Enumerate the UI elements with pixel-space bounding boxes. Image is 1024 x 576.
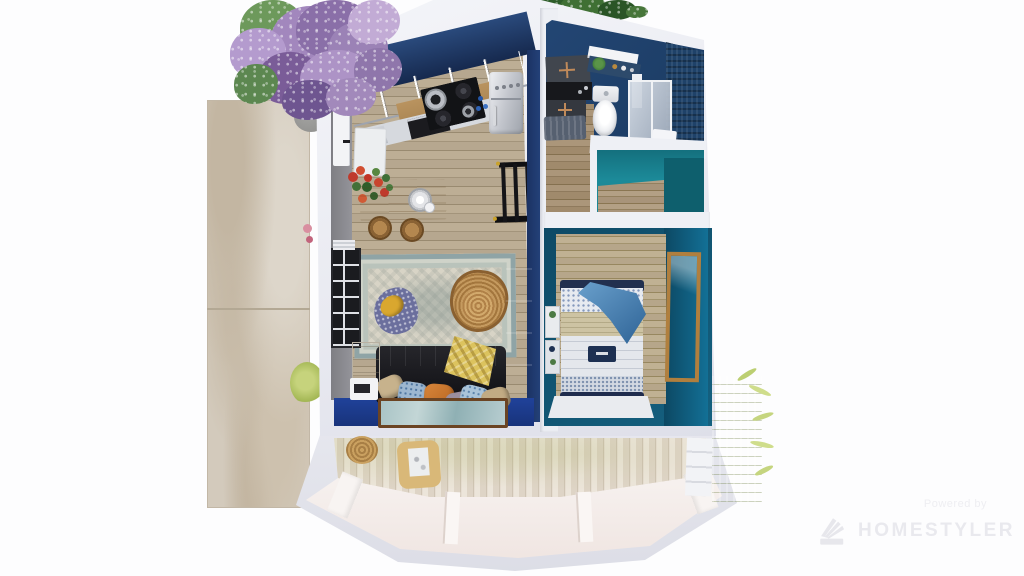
blue-bottle — [483, 104, 488, 109]
vanity-handle — [559, 69, 575, 72]
art-plant — [550, 359, 556, 365]
fridge-handle — [493, 106, 496, 126]
cushion-label — [596, 352, 608, 355]
fridge-knob — [509, 84, 513, 88]
roof-foliage — [626, 6, 648, 18]
fridge-seam — [491, 98, 521, 100]
wardrobe — [506, 266, 532, 396]
vanity-cabinet — [545, 55, 590, 85]
path-plant — [290, 362, 324, 404]
bed-floor-mat — [548, 396, 654, 418]
bedroom-picture-frame — [665, 252, 701, 383]
blue-bottle — [476, 106, 481, 111]
bed — [558, 280, 648, 410]
watermark-brand: HOMESTYLER — [858, 520, 1015, 542]
toilet — [589, 85, 621, 138]
railing-baluster — [513, 164, 519, 222]
closet-floor — [598, 180, 664, 216]
wall-art-frame — [545, 306, 560, 338]
vanity-handle — [558, 109, 572, 111]
stone-seam — [207, 308, 310, 310]
tree-foliage — [348, 0, 400, 44]
console-table — [350, 378, 378, 400]
art-accent — [549, 346, 555, 352]
bamboo-plant — [712, 376, 762, 502]
path-flower — [306, 236, 313, 243]
porch-table-tray — [408, 447, 430, 476]
cooking-pot — [422, 86, 448, 112]
veg-red — [356, 166, 365, 175]
fridge-knob — [516, 83, 520, 87]
kitchen-fridge — [489, 72, 523, 134]
bath-rug — [544, 115, 587, 140]
watermark: Powered by HOMESTYLER — [800, 498, 1015, 560]
vanity-counter — [546, 82, 592, 100]
porch-post — [576, 492, 594, 543]
toilet-bowl — [592, 100, 617, 137]
closet-right-wall — [664, 158, 704, 216]
watermark-powered-by: Powered by — [924, 498, 987, 510]
bath-bottle — [621, 65, 627, 71]
veg-green — [372, 168, 380, 176]
bedroom-wall-art — [544, 304, 560, 376]
bath-bottle — [612, 64, 618, 70]
path-flower — [303, 224, 312, 233]
purple-tree — [230, 0, 410, 132]
cooking-pan — [461, 104, 475, 118]
watermark-brand-row: HOMESTYLER — [816, 514, 1015, 548]
dining-stool — [400, 218, 424, 242]
coffee-table — [378, 398, 508, 428]
porch-post — [443, 492, 461, 545]
wall-art-frame — [545, 340, 560, 374]
console-slot — [354, 384, 370, 393]
rattan-seat — [460, 287, 496, 325]
closet-divider-wall — [590, 150, 597, 216]
sink-faucet — [578, 90, 582, 94]
stone-path — [207, 100, 310, 508]
fridge-knob — [495, 86, 499, 90]
table-cup — [424, 202, 435, 213]
dining-table — [360, 179, 447, 220]
porch-rattan-chair — [346, 436, 378, 464]
porch-bench-panel — [685, 438, 713, 497]
blue-bottle — [478, 96, 483, 101]
dining-stool — [368, 216, 392, 240]
door-handle — [343, 140, 350, 143]
bath-plant — [591, 56, 606, 71]
tree-foliage — [326, 78, 376, 116]
sink-faucet — [584, 86, 588, 90]
fridge-knob — [502, 85, 506, 89]
art-plant — [549, 311, 556, 318]
living-window — [331, 248, 361, 348]
window-blinds — [333, 240, 355, 250]
bath-bottle — [630, 68, 635, 73]
bed-cushion — [588, 346, 616, 362]
porch-table — [396, 440, 441, 490]
shower-enclosure — [618, 74, 670, 146]
railing-baluster — [501, 162, 507, 222]
floorplan-render: Powered by HOMESTYLER — [0, 0, 1024, 576]
homestyler-logo-icon — [816, 514, 850, 548]
